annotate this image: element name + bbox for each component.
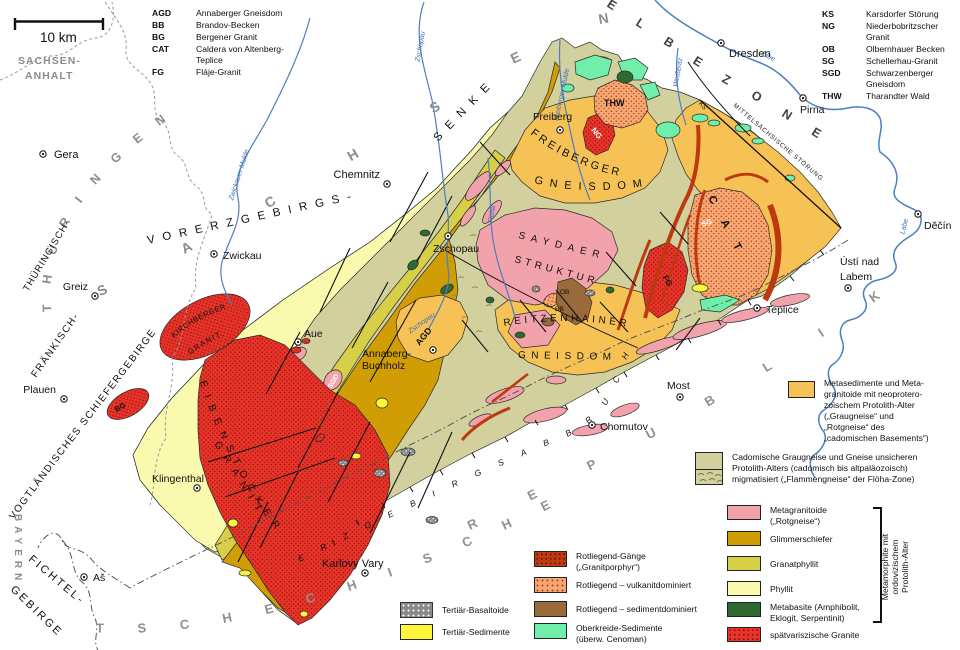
legend-line: zoischem Protolith-Alter: [824, 400, 929, 411]
abbr: OB: [822, 44, 862, 55]
svg-text:VOGTLÄNDISCHES SCHIEFERGEBIRGE: VOGTLÄNDISCHES SCHIEFERGEBIRGE: [7, 327, 158, 522]
legend-line: Rotliegend – vulkanitdominiert: [576, 580, 691, 591]
city-label-plauen: Plauen: [23, 384, 56, 396]
abbr: SGD: [822, 68, 862, 90]
city-label-klingenthal: Klingenthal: [152, 473, 204, 485]
abbr: AGD: [152, 8, 192, 19]
city-label-aue: Aue: [304, 328, 323, 340]
city-label-chomutov: Chomutov: [600, 421, 649, 433]
abbr-name: Fláje-Granit: [196, 67, 322, 78]
legend-line: spätvariszische Granite: [770, 630, 859, 641]
flame-pattern-icon: [696, 470, 722, 484]
legend-line: Rotliegend – sedimentdominiert: [576, 604, 697, 615]
region-label-bayern: BAYERN: [12, 514, 23, 585]
city-label-chemnitz: Chemnitz: [334, 169, 380, 181]
legend-cadomische: Cadomische Graugneise und Gneise unsiche…: [695, 452, 917, 485]
abbr-name: Schwarzenberger Gneisdom: [866, 68, 958, 90]
svg-text:FICHTEL-: FICHTEL-: [26, 553, 87, 607]
legend-swatch-granatphyllit: [727, 556, 761, 571]
legend-swatch-glimmerschiefer: [727, 531, 761, 546]
legend-line: Phyllit: [770, 584, 793, 595]
city-label-decin: Děčín: [924, 220, 952, 232]
legend-line: (überw. Cenoman): [576, 634, 662, 645]
abbr-name: Brandov-Becken: [196, 20, 322, 31]
legend-swatch-tertiaer-sedimente: [400, 624, 433, 640]
legend-swatch-metabasite: [727, 602, 761, 617]
city-label-dresden: Dresden: [729, 48, 771, 60]
legend-line: granitoide mit neoprotero-: [824, 389, 929, 400]
region-label-sachsen-anhalt-2: ANHALT: [25, 70, 73, 82]
abbr: THW: [822, 91, 862, 102]
abbr-name: Karsdorfer Störung: [866, 9, 958, 20]
abbr: SG: [822, 56, 862, 67]
legend-line: Tertiär-Sedimente: [442, 627, 510, 638]
city-label-most: Most: [667, 380, 690, 392]
abbr-name: Olbernhauer Becken: [866, 44, 958, 55]
legend-line: migmatisiert („Flammengneise“ der Flöha-…: [732, 474, 917, 485]
legend-line: Metamorphite mit: [880, 502, 890, 632]
abbr-name: Caldera von Altenberg-Teplice: [196, 44, 288, 66]
river-label-labe: Labe: [899, 218, 910, 235]
abbreviation-list-left: AGDAnnaberger Gneisdom BBBrandov-Becken …: [152, 8, 322, 78]
legend-line: Cadomische Graugneise und Gneise unsiche…: [732, 452, 917, 463]
scale-bar: [15, 18, 103, 30]
legend-line: „Rotgneise“ des: [824, 422, 929, 433]
legend-line: Tertiär-Basaltoide: [442, 605, 509, 616]
legend-swatch-metasedimente: [788, 381, 815, 398]
svg-text:GNEISDOM: GNEISDOM: [518, 350, 617, 363]
label-fraenkisch: FRÄNKISCH-: [29, 311, 81, 380]
legend-line: ordovizischem: [890, 502, 900, 632]
legend-line: Protolith-Alters (cadomisch bis altpaläo…: [732, 463, 917, 474]
legend-bracket-label: Metamorphite mit ordovizischem Protolith…: [880, 502, 910, 632]
abbr-name: Schellerhau-Granit: [866, 56, 958, 67]
legend-swatch-gaenge: [534, 551, 567, 567]
legend-line: Oberkreide-Sedimente: [576, 623, 662, 634]
legend-line: Protolith-Alter: [900, 502, 910, 632]
city-label-greiz: Greiz: [63, 281, 88, 293]
legend-swatch-oberkreide: [534, 623, 567, 639]
abbr-name: Tharandter Wald: [866, 91, 958, 102]
legend-line: („Granitporphyr“): [576, 562, 646, 573]
city-label-pirna: Pirna: [800, 104, 825, 116]
label-vogtlaendisches-schiefergebirge: VOGTLÄNDISCHES SCHIEFERGEBIRGE: [7, 327, 158, 522]
abbr: NG: [822, 21, 862, 43]
abbr: FG: [152, 67, 192, 78]
map-canvas: 10 km SACHSEN ELBEZONE THÜRINGEN TSCHECH…: [0, 0, 960, 650]
legend-line: Metasedimente und Meta-: [824, 378, 929, 389]
city-label-annaberg-2: Buchholz: [362, 360, 405, 372]
legend-swatch-vulkanit: [534, 577, 567, 593]
legend-swatch-phyllit: [727, 581, 761, 596]
abbr-name: Annaberger Gneisdom: [196, 8, 322, 19]
city-label-usti-1: Ústí nad: [840, 255, 879, 268]
label-ob: OB: [560, 289, 569, 296]
legend-line: Metabasite (Amphibolit,: [770, 602, 860, 613]
river-label-zwickauer-mulde: Zwickauer Mulde: [228, 149, 251, 203]
city-label-karlovy-vary: Karlovy Vary: [322, 558, 384, 570]
label-vorerzgebirgs: VORERZGEBIRGS-: [146, 189, 360, 247]
legend-line: Eklogit, Serpentinit): [770, 613, 860, 624]
svg-text:VORERZGEBIRGS-: VORERZGEBIRGS-: [146, 189, 360, 247]
legend-metasedimente: Metasedimente und Meta- granitoide mit n…: [788, 378, 929, 444]
city-label-zwickau: Zwickau: [223, 250, 262, 262]
city-label-gera: Gera: [54, 149, 79, 161]
abbr-name: Niederbobritzscher Granit: [866, 21, 958, 43]
city-label-freiberg: Freiberg: [533, 111, 572, 123]
city-label-usti-2: Labem: [840, 271, 872, 283]
legend-line: Metagranitoide: [770, 505, 827, 516]
river-label-zschopau-north: Zschopau: [414, 31, 426, 64]
label-fichtel: FICHTEL-: [26, 553, 87, 607]
legend-line: Glimmerschiefer: [770, 534, 833, 545]
abbreviation-list-right: KSKarsdorfer Störung NGNiederbobritzsche…: [822, 9, 958, 102]
label-thw: THW: [604, 98, 625, 108]
abbr-name: Bergener Granit: [196, 32, 322, 43]
legend-line: („Rotgneise“): [770, 516, 827, 527]
region-label-sachsen-anhalt-1: SACHSEN-: [18, 55, 81, 67]
svg-text:BAYERN: BAYERN: [12, 514, 23, 585]
legend-line: Rotliegend-Gänge: [576, 551, 646, 562]
city-label-zschopau: Zschopau: [433, 243, 479, 255]
svg-text:FRÄNKISCH-: FRÄNKISCH-: [29, 311, 81, 380]
label-gebirge: GEBIRGE: [8, 584, 65, 640]
city-label-annaberg-1: Annaberg-: [362, 348, 412, 360]
abbr: BB: [152, 20, 192, 31]
svg-text:GEBIRGE: GEBIRGE: [8, 584, 65, 640]
scale-label: 10 km: [40, 30, 77, 45]
legend-line: („Graugneise“ und: [824, 411, 929, 422]
legend-swatch-sediment: [534, 601, 567, 617]
abbr: CAT: [152, 44, 192, 66]
river-label-weisseritz: Weißeritz: [673, 57, 685, 88]
legend-swatch-granite: [727, 627, 761, 642]
abbr: BG: [152, 32, 192, 43]
city-label-as: Aš: [93, 572, 105, 584]
legend-swatch-metagranitoide: [727, 505, 761, 520]
label-gneisdom-reitzenhain: GNEISDOM: [518, 350, 617, 363]
city-label-teplice: Teplice: [766, 304, 799, 316]
legend-swatch-cadomische: [695, 452, 723, 485]
label-bb: BB: [555, 306, 564, 313]
legend-swatch-basaltoide: [400, 602, 433, 618]
legend-line: „cadomischen Basements“): [824, 433, 929, 444]
abbr: KS: [822, 9, 862, 20]
legend-line: Granatphyllit: [770, 559, 818, 570]
geological-map-erzgebirge: 10 km SACHSEN ELBEZONE THÜRINGEN TSCHECH…: [0, 0, 960, 650]
